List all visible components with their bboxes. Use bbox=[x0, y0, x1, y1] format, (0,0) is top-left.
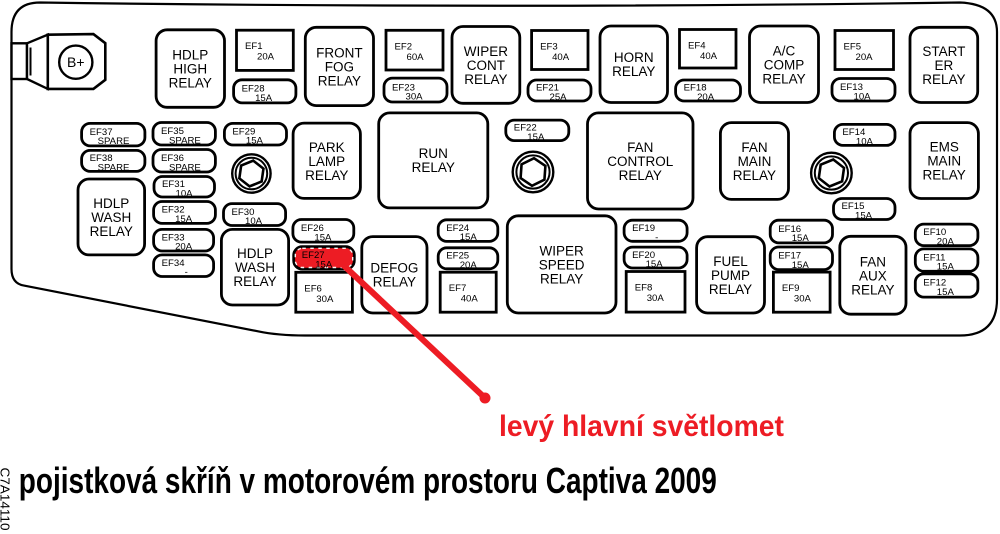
svg-text:25A: 25A bbox=[550, 92, 568, 103]
svg-text:HDLP: HDLP bbox=[237, 246, 273, 261]
svg-text:EF9: EF9 bbox=[782, 283, 800, 294]
svg-text:DEFOG: DEFOG bbox=[370, 260, 418, 275]
svg-text:EF34: EF34 bbox=[162, 258, 186, 269]
svg-text:15A: 15A bbox=[460, 232, 478, 243]
svg-text:HDLP: HDLP bbox=[172, 48, 208, 63]
svg-text:CONTROL: CONTROL bbox=[607, 154, 673, 169]
svg-text:LAMP: LAMP bbox=[308, 154, 345, 169]
svg-text:15A: 15A bbox=[937, 287, 955, 298]
svg-text:EF6: EF6 bbox=[304, 283, 322, 294]
svg-text:FRONT: FRONT bbox=[316, 45, 363, 60]
svg-text:SPARE: SPARE bbox=[98, 136, 130, 147]
svg-text:RELAY: RELAY bbox=[90, 224, 133, 239]
svg-text:10A: 10A bbox=[856, 136, 874, 147]
svg-text:15A: 15A bbox=[255, 93, 273, 104]
svg-text:20A: 20A bbox=[697, 92, 715, 103]
svg-text:RELAY: RELAY bbox=[373, 274, 416, 289]
svg-text:FAN: FAN bbox=[627, 140, 653, 155]
svg-text:EF3: EF3 bbox=[540, 42, 558, 53]
svg-text:B+: B+ bbox=[67, 54, 85, 70]
svg-text:A/C: A/C bbox=[773, 43, 796, 58]
svg-text:30A: 30A bbox=[794, 294, 812, 305]
svg-text:PUMP: PUMP bbox=[711, 268, 750, 283]
svg-text:30A: 30A bbox=[316, 294, 334, 305]
svg-text:15A: 15A bbox=[646, 259, 664, 270]
svg-text:RELAY: RELAY bbox=[540, 271, 583, 286]
svg-text:START: START bbox=[922, 44, 965, 59]
svg-text:SPARE: SPARE bbox=[169, 135, 201, 146]
svg-text:RELAY: RELAY bbox=[922, 72, 965, 87]
svg-text:RUN: RUN bbox=[419, 146, 448, 161]
svg-text:20A: 20A bbox=[460, 260, 478, 271]
svg-text:EF5: EF5 bbox=[844, 42, 862, 53]
svg-text:EF4: EF4 bbox=[688, 41, 706, 52]
svg-text:WIPER: WIPER bbox=[540, 243, 585, 258]
svg-text:20A: 20A bbox=[856, 52, 874, 63]
svg-text:10A: 10A bbox=[176, 188, 194, 199]
svg-text:EF1: EF1 bbox=[245, 41, 263, 52]
svg-text:RELAY: RELAY bbox=[733, 168, 776, 183]
svg-text:RELAY: RELAY bbox=[762, 71, 805, 86]
svg-text:15A: 15A bbox=[792, 260, 810, 271]
svg-text:MAIN: MAIN bbox=[927, 154, 961, 169]
svg-text:EF8: EF8 bbox=[635, 283, 653, 294]
svg-text:10A: 10A bbox=[854, 91, 872, 102]
svg-text:30A: 30A bbox=[406, 92, 424, 103]
svg-text:30A: 30A bbox=[647, 293, 665, 304]
svg-text:20A: 20A bbox=[175, 242, 193, 253]
svg-text:40A: 40A bbox=[700, 51, 718, 62]
svg-text:RELAY: RELAY bbox=[464, 72, 507, 87]
svg-text:FOG: FOG bbox=[325, 59, 354, 74]
svg-text:RELAY: RELAY bbox=[612, 64, 655, 79]
svg-text:HIGH: HIGH bbox=[173, 62, 207, 77]
svg-text:HORN: HORN bbox=[614, 50, 654, 65]
svg-text:MAIN: MAIN bbox=[738, 154, 772, 169]
svg-text:RELAY: RELAY bbox=[233, 274, 276, 289]
svg-text:ER: ER bbox=[934, 58, 953, 73]
svg-text:-: - bbox=[655, 232, 658, 243]
svg-text:SPARE: SPARE bbox=[98, 162, 130, 173]
svg-text:COMP: COMP bbox=[764, 57, 805, 72]
svg-text:RELAY: RELAY bbox=[709, 282, 752, 297]
svg-text:SPARE: SPARE bbox=[169, 162, 201, 173]
svg-text:15A: 15A bbox=[314, 232, 332, 243]
svg-text:EMS: EMS bbox=[930, 140, 959, 155]
svg-text:RELAY: RELAY bbox=[851, 282, 894, 297]
svg-text:RELAY: RELAY bbox=[412, 160, 455, 175]
svg-text:20A: 20A bbox=[937, 236, 955, 247]
svg-text:-: - bbox=[185, 267, 188, 278]
svg-text:EF7: EF7 bbox=[449, 283, 467, 294]
svg-text:60A: 60A bbox=[407, 52, 425, 63]
svg-text:15A: 15A bbox=[855, 211, 873, 222]
svg-text:RELAY: RELAY bbox=[923, 168, 966, 183]
svg-text:AUX: AUX bbox=[859, 268, 887, 283]
svg-text:FAN: FAN bbox=[741, 140, 767, 155]
svg-text:WASH: WASH bbox=[91, 210, 131, 225]
svg-text:20A: 20A bbox=[257, 52, 275, 63]
svg-text:40A: 40A bbox=[461, 294, 479, 305]
svg-text:10A: 10A bbox=[245, 216, 263, 227]
svg-text:15A: 15A bbox=[175, 214, 193, 225]
svg-text:WASH: WASH bbox=[235, 260, 275, 275]
svg-text:EF2: EF2 bbox=[395, 41, 413, 52]
svg-text:RELAY: RELAY bbox=[169, 76, 212, 91]
svg-text:RELAY: RELAY bbox=[619, 168, 662, 183]
svg-text:HDLP: HDLP bbox=[93, 196, 129, 211]
svg-text:40A: 40A bbox=[552, 52, 570, 63]
svg-text:15A: 15A bbox=[246, 136, 264, 147]
svg-text:EF19: EF19 bbox=[632, 223, 655, 234]
svg-text:15A: 15A bbox=[315, 259, 333, 270]
svg-text:RELAY: RELAY bbox=[318, 73, 361, 88]
svg-text:FUEL: FUEL bbox=[713, 254, 748, 269]
svg-text:FAN: FAN bbox=[860, 254, 886, 269]
svg-text:15A: 15A bbox=[937, 262, 955, 273]
svg-text:RELAY: RELAY bbox=[305, 168, 348, 183]
svg-text:SPEED: SPEED bbox=[539, 257, 585, 272]
svg-text:CONT: CONT bbox=[467, 58, 505, 73]
svg-text:15A: 15A bbox=[527, 132, 545, 143]
svg-text:pojistková skříň v motorovém p: pojistková skříň v motorovém prostoru Ca… bbox=[19, 460, 717, 501]
svg-text:PARK: PARK bbox=[309, 140, 345, 155]
svg-text:WIPER: WIPER bbox=[464, 44, 509, 59]
svg-text:C7A14110: C7A14110 bbox=[0, 468, 13, 531]
svg-text:levý hlavní světlomet: levý hlavní světlomet bbox=[499, 410, 784, 443]
svg-text:15A: 15A bbox=[792, 233, 810, 244]
